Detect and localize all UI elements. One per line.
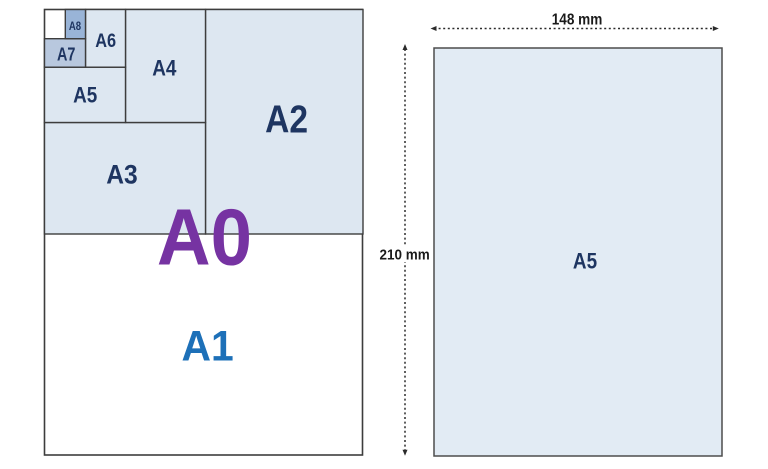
svg-text:A2: A2: [265, 97, 308, 141]
svg-text:A1: A1: [181, 321, 233, 369]
svg-text:A0: A0: [157, 193, 252, 282]
svg-text:A3: A3: [106, 161, 137, 190]
svg-text:A8: A8: [69, 20, 81, 33]
svg-text:148 mm: 148 mm: [552, 12, 603, 29]
svg-text:A4: A4: [152, 56, 177, 81]
svg-text:A7: A7: [57, 44, 75, 65]
svg-text:A5: A5: [573, 249, 597, 274]
svg-text:210 mm: 210 mm: [379, 247, 429, 264]
svg-text:A6: A6: [95, 30, 116, 51]
svg-text:A5: A5: [73, 83, 97, 108]
